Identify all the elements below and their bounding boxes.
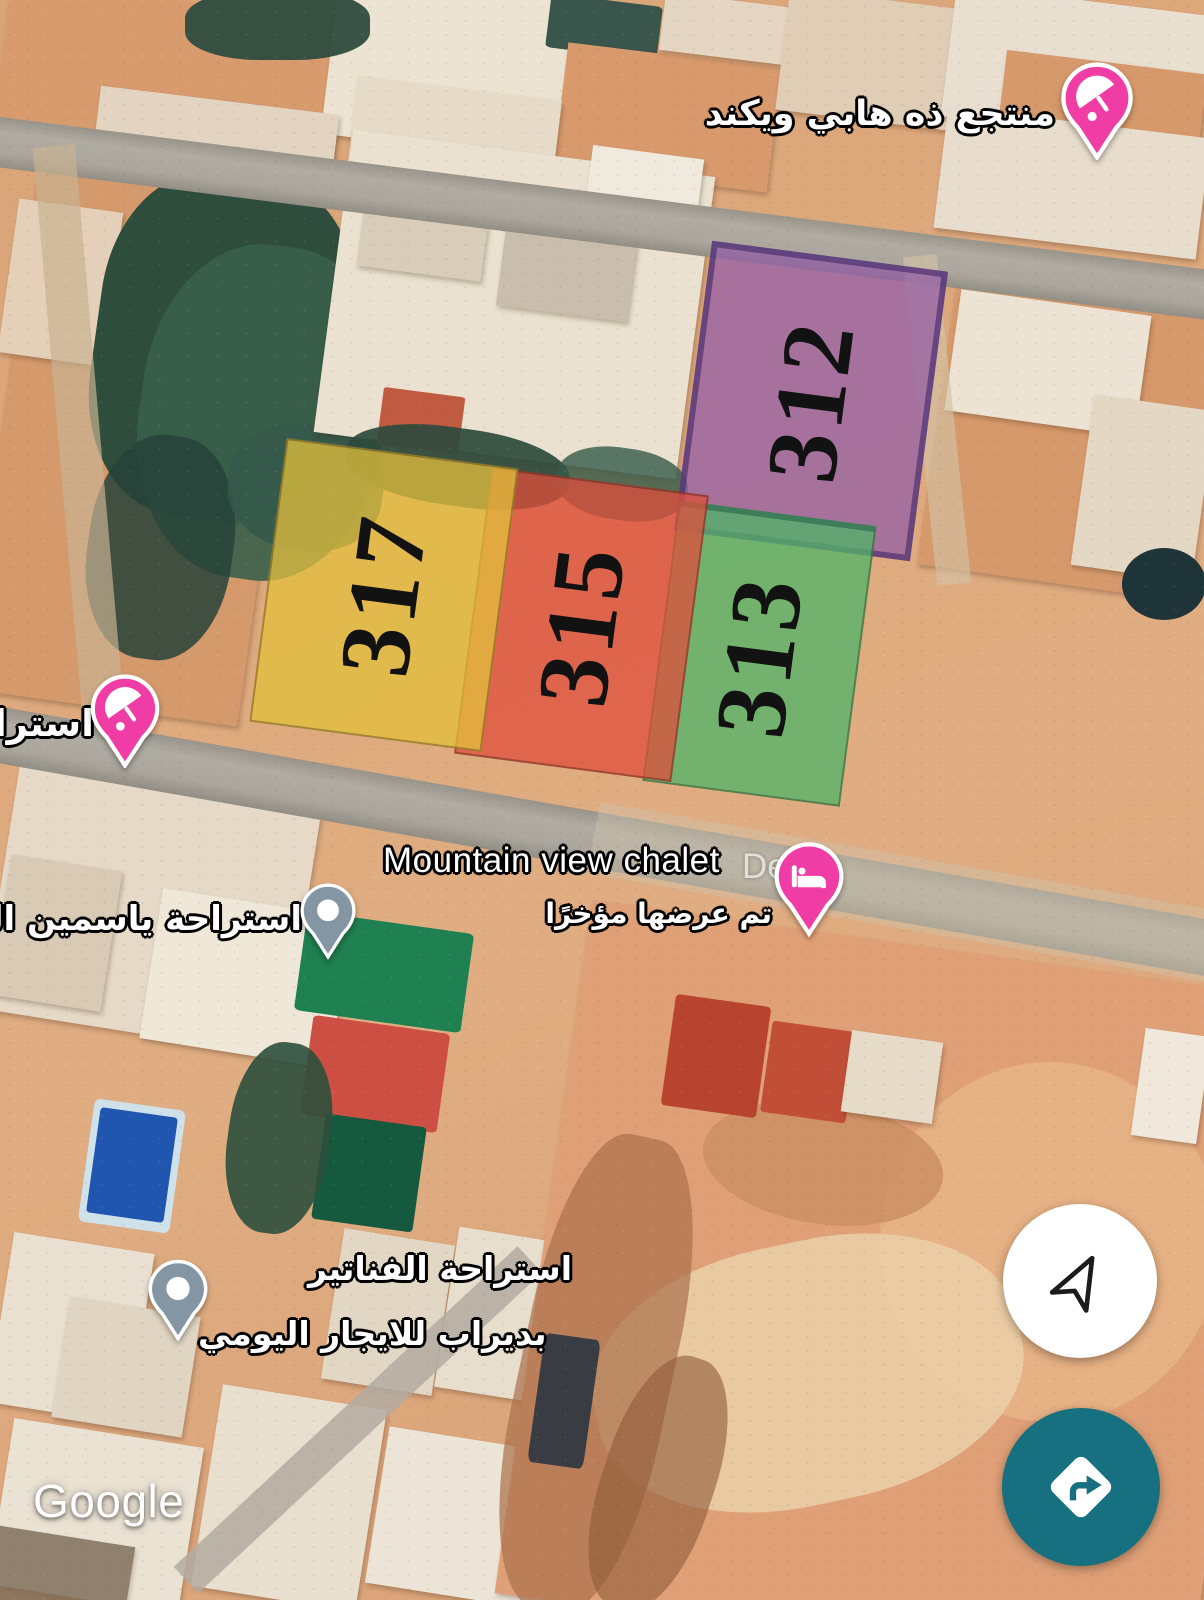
parcel-313-number: 313 bbox=[699, 569, 819, 743]
parcel-312-number: 312 bbox=[751, 314, 871, 488]
my-location-button[interactable] bbox=[1003, 1204, 1157, 1358]
terrain-feature bbox=[661, 994, 772, 1118]
parcel-317-number: 317 bbox=[324, 508, 444, 682]
directions-icon bbox=[1041, 1447, 1121, 1527]
fanateer-dot-pin[interactable] bbox=[148, 1258, 208, 1342]
terrain-feature bbox=[1122, 548, 1204, 620]
poi-label-yasmin-rest[interactable]: استراحة ياسمين الشا bbox=[0, 899, 302, 939]
parcel-315-number: 315 bbox=[521, 538, 641, 712]
hotel-pin[interactable] bbox=[774, 840, 844, 938]
directions-button[interactable] bbox=[1002, 1408, 1160, 1566]
satellite-map-view[interactable]: 312 313 315 317 منتجع ذه هابي ويكند استر… bbox=[0, 0, 1204, 1600]
poi-label-left-partial[interactable]: استرا bbox=[0, 702, 94, 745]
navigation-arrow-icon bbox=[1047, 1248, 1113, 1314]
dot-icon bbox=[148, 1258, 208, 1342]
bed-icon bbox=[774, 840, 844, 938]
parcel-317-overlay: 317 bbox=[249, 438, 518, 752]
dot-icon bbox=[300, 882, 356, 960]
poi-label-fanateer-line2[interactable]: بديراب للايجار اليومي bbox=[198, 1314, 547, 1353]
poi-label-fanateer-line1[interactable]: استراحة الفناتير bbox=[308, 1249, 572, 1288]
beach-umbrella-icon bbox=[90, 674, 160, 768]
poi-label-mountain-view-chalet[interactable]: Mountain view chalet bbox=[383, 841, 720, 881]
terrain-feature bbox=[841, 1030, 944, 1124]
terrain-feature bbox=[86, 1107, 178, 1223]
beach-umbrella-icon bbox=[1060, 62, 1134, 160]
poi-label-happy-weekend-resort[interactable]: منتجع ذه هابي ويكند bbox=[705, 94, 1055, 134]
google-watermark: Google bbox=[33, 1474, 184, 1528]
terrain-feature bbox=[185, 0, 370, 60]
poi-label-recently-listed: تم عرضها مؤخرًا bbox=[545, 897, 772, 930]
left-resort-pin[interactable] bbox=[90, 674, 160, 768]
yasmin-dot-pin[interactable] bbox=[300, 882, 356, 960]
resort-pin[interactable] bbox=[1060, 62, 1134, 160]
